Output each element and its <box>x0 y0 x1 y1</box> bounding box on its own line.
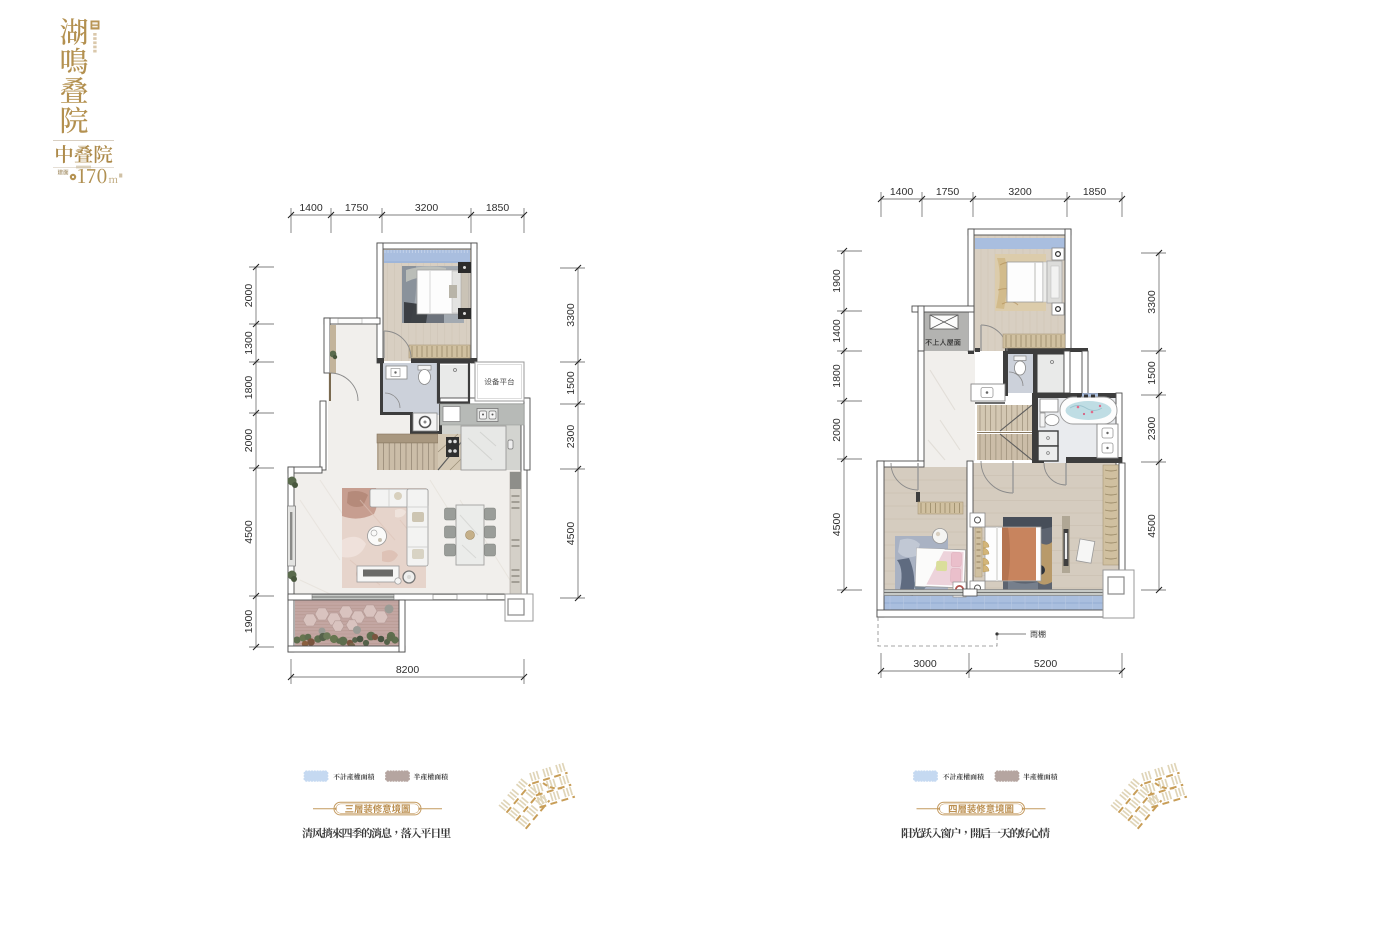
svg-text:2000: 2000 <box>831 418 843 442</box>
svg-text:3200: 3200 <box>415 202 439 214</box>
svg-text:1500: 1500 <box>1146 361 1158 385</box>
svg-text:1400: 1400 <box>831 319 843 343</box>
svg-text:3300: 3300 <box>1146 290 1158 314</box>
svg-text:1400: 1400 <box>890 186 914 198</box>
svg-text:1850: 1850 <box>1083 186 1107 198</box>
svg-text:3200: 3200 <box>1008 186 1032 198</box>
svg-text:1750: 1750 <box>936 186 960 198</box>
svg-text:2300: 2300 <box>1146 417 1158 441</box>
svg-text:3000: 3000 <box>913 658 937 670</box>
svg-text:4500: 4500 <box>1146 514 1158 538</box>
svg-text:8200: 8200 <box>396 664 420 676</box>
svg-text:4500: 4500 <box>831 513 843 537</box>
svg-text:2300: 2300 <box>565 425 577 449</box>
svg-text:1900: 1900 <box>243 610 255 634</box>
svg-text:4500: 4500 <box>565 522 577 546</box>
svg-text:1300: 1300 <box>243 331 255 355</box>
svg-text:1500: 1500 <box>565 371 577 395</box>
svg-text:3300: 3300 <box>565 303 577 327</box>
svg-text:4500: 4500 <box>243 520 255 544</box>
svg-text:1750: 1750 <box>345 202 369 214</box>
svg-text:1400: 1400 <box>299 202 323 214</box>
svg-text:1800: 1800 <box>243 376 255 400</box>
svg-text:1800: 1800 <box>831 364 843 388</box>
svg-text:2000: 2000 <box>243 429 255 453</box>
svg-text:1850: 1850 <box>486 202 510 214</box>
svg-text:5200: 5200 <box>1034 658 1058 670</box>
svg-text:2000: 2000 <box>243 284 255 308</box>
svg-text:1900: 1900 <box>831 269 843 293</box>
